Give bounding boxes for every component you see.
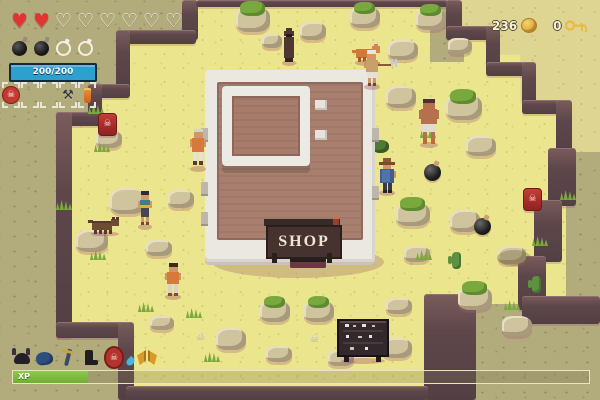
blue-tunic-icon — [35, 344, 55, 370]
water-drop-icon — [125, 356, 136, 367]
bombs-row — [12, 41, 93, 56]
skull-shield-icon: ☠ — [104, 346, 124, 369]
xp-label: XP — [13, 373, 30, 381]
skull-emblem-icon: ☠ — [2, 86, 20, 104]
axe-icon: ⚒ — [62, 89, 74, 102]
heart-filled-icon: ♥ — [32, 10, 51, 32]
hotbar-slot-2[interactable] — [21, 82, 39, 108]
hotbar-slot-3[interactable] — [40, 82, 58, 108]
golden-wings-icon — [137, 344, 157, 370]
health-bar: 200/200 — [9, 63, 97, 82]
bomb-filled-icon — [12, 41, 27, 56]
key-count: 0 — [553, 19, 561, 33]
health-value: 200/200 — [33, 68, 74, 77]
hotbar-slot-4[interactable]: ⚒ — [59, 82, 77, 108]
gold-coin-icon — [521, 18, 537, 33]
coin-count: 236 — [492, 19, 517, 33]
gold-key-icon — [565, 19, 589, 32]
sword-icon — [58, 344, 78, 370]
heart-empty-icon: ♡ — [76, 10, 95, 32]
xp-fill: XP — [13, 371, 88, 383]
heart-empty-icon: ♡ — [142, 10, 161, 32]
hotbar: ☠ ⚒ — [2, 82, 96, 108]
heart-filled-icon: ♥ — [10, 10, 29, 32]
hotbar-slot-5[interactable] — [78, 82, 96, 108]
bomb-empty-icon — [56, 41, 71, 56]
shield-skull-glyph: ☠ — [110, 353, 118, 363]
heart-empty-icon: ♡ — [54, 10, 73, 32]
equipment-row: ☠ — [12, 344, 157, 370]
heart-empty-icon: ♡ — [164, 10, 183, 32]
xp-bar: XP — [12, 370, 590, 384]
bomb-filled-icon — [34, 41, 49, 56]
orange-potion-icon — [84, 88, 91, 103]
bomb-empty-icon — [78, 41, 93, 56]
horned-helmet-icon — [12, 344, 32, 370]
hud-layer: ♥♥♡♡♡♡♡♡ 200/200 ☠ ⚒ 236 0 — [0, 0, 600, 400]
heart-empty-icon: ♡ — [98, 10, 117, 32]
game-viewport: ☠☠☠☠ SHOP — [0, 0, 600, 400]
currency-row: 236 0 — [492, 18, 589, 33]
hearts-row: ♥♥♡♡♡♡♡♡ — [10, 10, 183, 32]
boot-icon — [81, 344, 101, 370]
heart-empty-icon: ♡ — [120, 10, 139, 32]
hotbar-slot-1[interactable]: ☠ — [2, 82, 20, 108]
